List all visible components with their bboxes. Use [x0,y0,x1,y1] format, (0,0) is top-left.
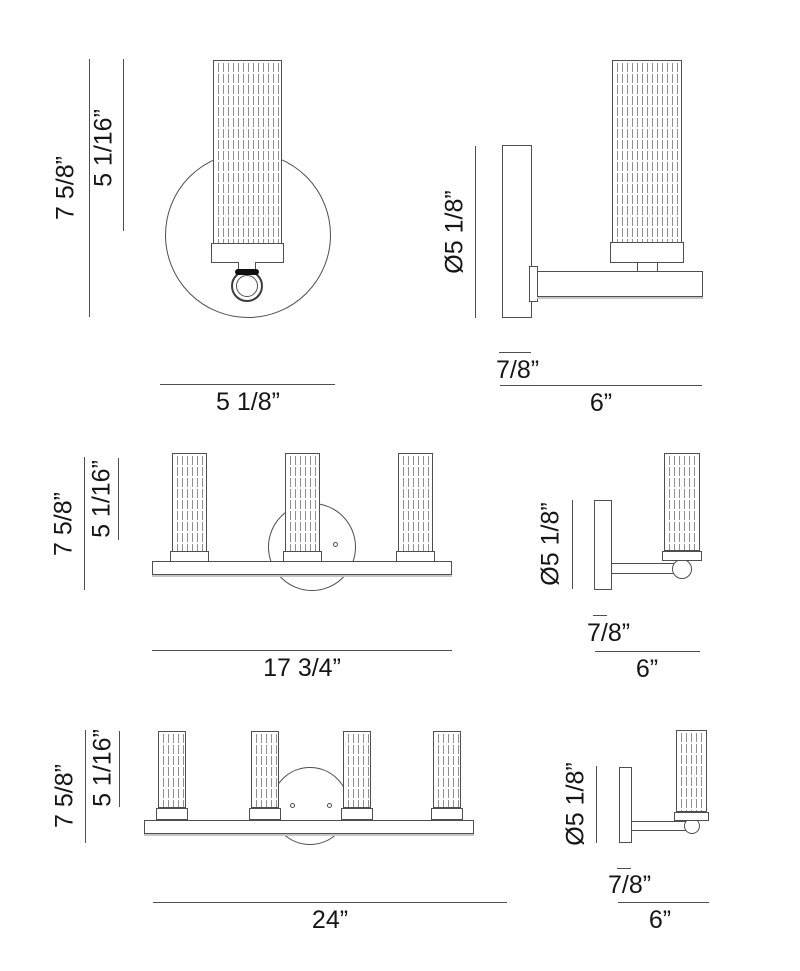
decorative-ring-inner [236,275,258,297]
extension-label: 6” [636,655,658,684]
socket-holder [156,808,188,820]
glass-shade [398,453,433,552]
overall-height-label: 7 5/8” [52,156,81,220]
screw-hole [333,542,338,547]
mounting-arm [537,271,703,297]
socket-holder [249,808,281,820]
holder-stem [657,263,658,271]
backplate-depth-label: 7/8” [608,871,651,900]
socket-holder [674,812,709,821]
backplate-diameter-label: Ø5 1/8” [537,502,566,585]
glass-shade [612,60,682,243]
backplate-profile [619,767,632,843]
arm-ball-joint [672,559,692,579]
dimension-line-backplate-depth [593,615,607,616]
mounting-bar [144,820,474,834]
extension-label: 6” [649,906,671,935]
dimension-line-backplate-diameter [572,500,573,589]
dimension-line-overall-height [89,59,90,317]
holder-stem [637,263,638,271]
socket-holder [610,242,684,263]
backplate-diameter-label: Ø5 1/8” [441,190,470,273]
glass-height-label: 5 1/16” [88,460,117,538]
dimension-line-glass-height [123,59,124,231]
dimension-line-backplate-diameter [596,766,597,843]
dimension-line-extension [618,902,709,903]
socket-holder [662,551,702,561]
backplate-depth-label: 7/8” [496,356,539,385]
glass-height-label: 5 1/16” [89,729,118,807]
backplate-profile [594,500,612,590]
glass-shade [213,60,282,245]
backplate-diameter-label: Ø5 1/8” [562,762,591,845]
ring-clamp [235,269,259,275]
overall-height-label: 7 5/8” [50,492,79,556]
glass-height-label: 5 1/16” [90,109,119,187]
glass-shade [664,453,700,551]
glass-shade [433,731,461,808]
overall-width-label: 5 1/8” [216,388,280,417]
dimension-line-glass-height [119,731,120,807]
backplate-depth-label: 7/8” [587,619,630,648]
dimension-line-backplate-depth [499,352,531,353]
screw-hole [290,803,295,808]
backplate-profile [502,145,532,318]
dimension-line-extension [595,651,700,652]
mounting-arm [631,821,687,831]
dimension-line-overall-width [153,902,507,903]
glass-shade [343,731,371,808]
dimension-diagram-page: 7 5/8” 5 1/16” 5 1/8” Ø5 1/8” 7/8” 6” 7 … [0,0,800,971]
socket-holder [396,551,435,562]
glass-shade [285,453,320,552]
dimension-line-backplate-depth [617,868,631,869]
glass-shade [158,731,186,808]
dimension-line-overall-width [152,650,452,651]
overall-width-label: 17 3/4” [263,654,341,683]
extension-label: 6” [590,389,612,418]
dimension-line-overall-height [84,457,85,590]
glass-shade [676,730,707,812]
glass-shade [172,453,207,552]
mounting-arm [611,563,676,574]
dimension-line-glass-height [118,458,119,540]
socket-holder [211,243,284,263]
socket-holder [431,808,463,820]
dimension-line-overall-width [160,384,335,385]
glass-shade [251,731,279,808]
screw-hole [327,803,332,808]
mounting-bar [152,561,452,575]
socket-holder [283,551,322,562]
overall-height-label: 7 5/8” [51,764,80,828]
dimension-line-extension [500,385,702,386]
overall-width-label: 24” [312,906,348,935]
socket-holder [341,808,373,820]
dimension-line-backplate-diameter [475,146,476,318]
dimension-line-overall-height [85,730,86,843]
socket-holder [170,551,209,562]
